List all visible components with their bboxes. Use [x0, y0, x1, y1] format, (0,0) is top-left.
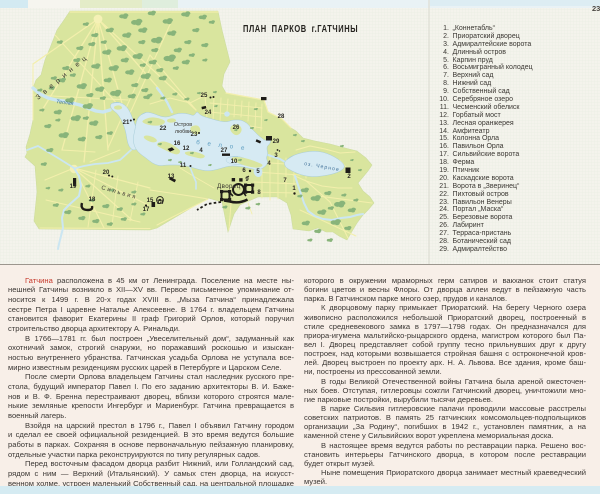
- svg-text:28: 28: [278, 114, 285, 120]
- svg-text:15: 15: [147, 198, 154, 204]
- svg-text:20: 20: [103, 170, 110, 176]
- svg-text:Дворец: Дворец: [217, 183, 241, 190]
- svg-text:18: 18: [89, 197, 96, 203]
- svg-text:22: 22: [160, 126, 167, 132]
- svg-text:16: 16: [174, 141, 181, 147]
- svg-text:Остров: Остров: [174, 122, 192, 128]
- svg-text:21: 21: [123, 120, 130, 126]
- svg-text:19: 19: [70, 184, 77, 190]
- svg-text:24: 24: [205, 110, 212, 116]
- svg-text:10: 10: [231, 159, 238, 165]
- svg-text:12: 12: [183, 146, 190, 152]
- svg-text:25: 25: [201, 93, 208, 99]
- svg-text:любви: любви: [175, 129, 191, 135]
- svg-text:17: 17: [143, 207, 150, 213]
- svg-text:26: 26: [233, 125, 240, 131]
- svg-text:14: 14: [157, 200, 164, 206]
- svg-text:29: 29: [273, 139, 280, 145]
- svg-text:11: 11: [180, 163, 187, 169]
- svg-text:23: 23: [191, 132, 198, 138]
- svg-text:13: 13: [168, 174, 175, 180]
